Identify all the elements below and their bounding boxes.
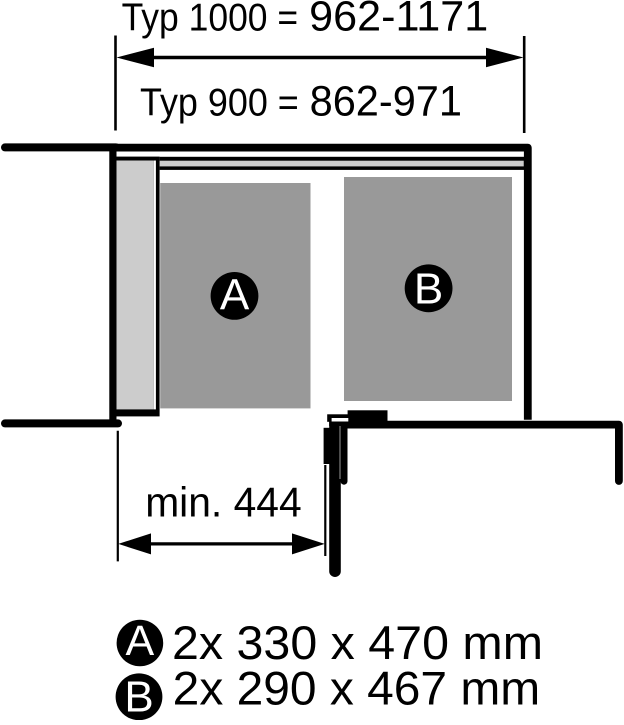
svg-text:A: A	[126, 617, 155, 665]
svg-text:B: B	[124, 672, 153, 720]
svg-text:962-1171: 962-1171	[309, 0, 488, 40]
svg-text:2x 290 x 467 mm: 2x 290 x 467 mm	[173, 662, 541, 715]
svg-text:862-971: 862-971	[310, 78, 462, 126]
svg-text:min. 444: min. 444	[145, 479, 302, 526]
svg-text:A: A	[220, 271, 250, 320]
svg-text:B: B	[414, 264, 443, 313]
svg-text:Typ 900 =: Typ 900 =	[140, 82, 299, 125]
svg-text:Typ 1000 =: Typ 1000 =	[122, 0, 299, 39]
